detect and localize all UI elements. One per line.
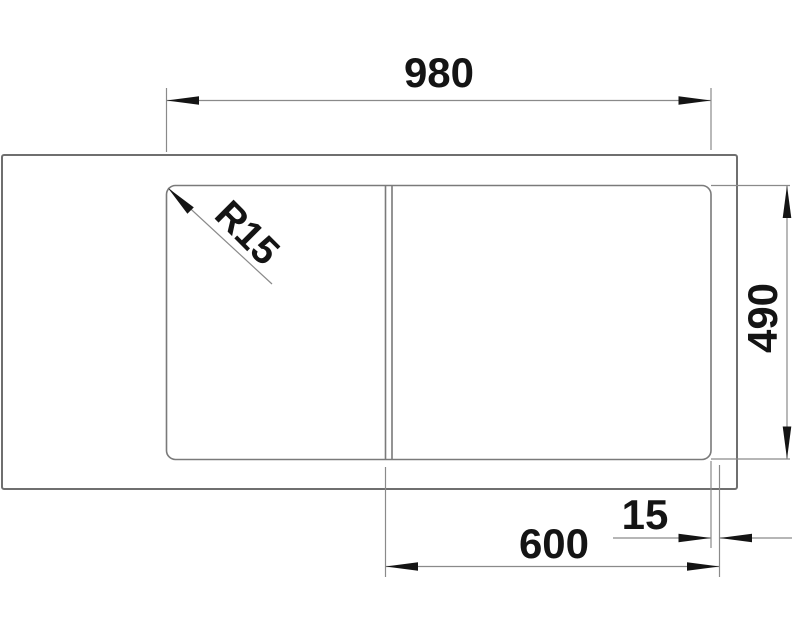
arrowhead-down-icon: [783, 427, 792, 460]
arrowhead-diagonal-icon: [168, 188, 194, 214]
arrowhead-up-icon: [783, 186, 792, 219]
arrowhead-right-icon: [679, 96, 712, 105]
arrowhead-left-icon: [167, 96, 200, 105]
dim-label-bowl-width: 600: [519, 520, 589, 567]
arrowhead-left-icon: [720, 534, 753, 543]
dim-label-overall-width: 980: [404, 49, 474, 96]
dimension-rim-offset: 15: [613, 461, 792, 548]
dim-label-rim-offset: 15: [622, 491, 669, 538]
dimension-overall-width: 980: [167, 49, 712, 152]
radius-callout: R15: [168, 188, 287, 284]
arrowhead-left-icon: [386, 562, 419, 571]
dim-label-corner-radius: R15: [206, 193, 287, 274]
sink-outer-outline: [2, 155, 737, 489]
technical-drawing-svg: 980 490 600 15: [0, 0, 800, 640]
sink-dimension-drawing: 980 490 600 15: [0, 0, 800, 640]
arrowhead-right-icon: [679, 534, 712, 543]
dimension-overall-depth: 490: [711, 186, 791, 460]
arrowhead-right-icon: [687, 562, 720, 571]
dim-label-overall-depth: 490: [739, 283, 786, 353]
dimension-bowl-width: 600: [386, 465, 720, 577]
